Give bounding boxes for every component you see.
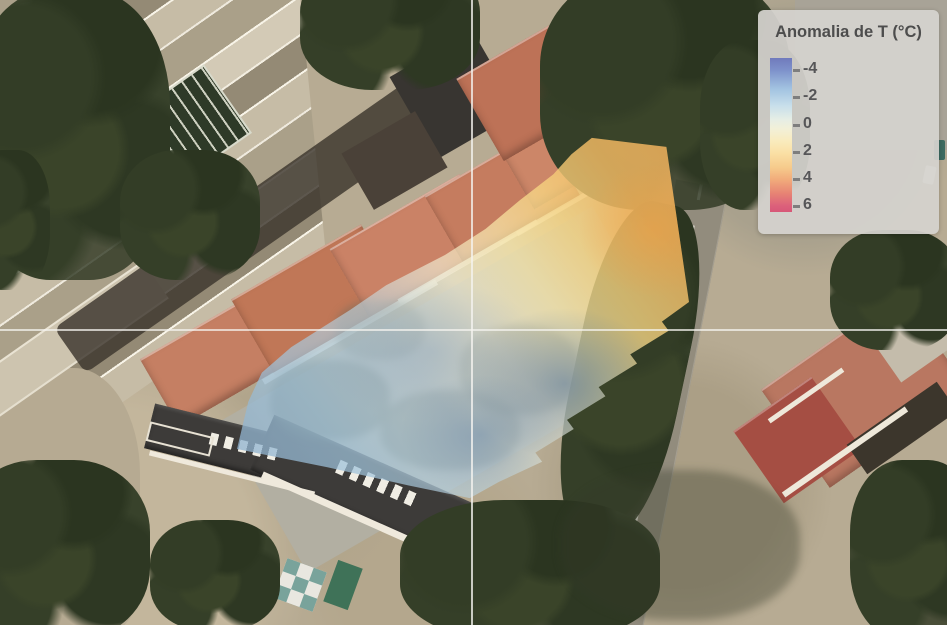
- legend-tick-label: 2: [803, 142, 812, 160]
- legend-tick-mark: [793, 178, 800, 181]
- legend-tick-mark: [793, 69, 800, 72]
- legend-tick-label: 4: [803, 169, 812, 187]
- trees-mid-left: [120, 150, 260, 280]
- trees-bottom-right: [850, 460, 947, 625]
- trees-right-below-legend: [830, 230, 947, 350]
- trees-courtyard: [150, 520, 280, 625]
- tree-shadow-bottom-right: [560, 470, 800, 620]
- crosshair-horizontal: [0, 329, 947, 331]
- crosshair-vertical: [471, 0, 473, 625]
- legend-tick-mark: [793, 205, 800, 208]
- legend-tick-label: -4: [803, 60, 817, 78]
- legend-title: Anomalia de T (°C): [758, 23, 939, 42]
- legend-tick-mark: [793, 96, 800, 99]
- trees-left-edge: [0, 150, 50, 290]
- trees-bottom-left: [0, 460, 150, 625]
- legend-tick-mark: [793, 151, 800, 154]
- legend-tick-label: 6: [803, 196, 812, 214]
- legend-panel: Anomalia de T (°C) -4 -2 0 2 4 6: [758, 10, 939, 234]
- map-canvas[interactable]: Anomalia de T (°C) -4 -2 0 2 4 6: [0, 0, 947, 625]
- legend-tick-mark: [793, 124, 800, 127]
- trees-top-center: [300, 0, 480, 90]
- legend-colorbar: [770, 58, 792, 212]
- legend-tick-label: -2: [803, 87, 817, 105]
- legend-tick-label: 0: [803, 115, 812, 133]
